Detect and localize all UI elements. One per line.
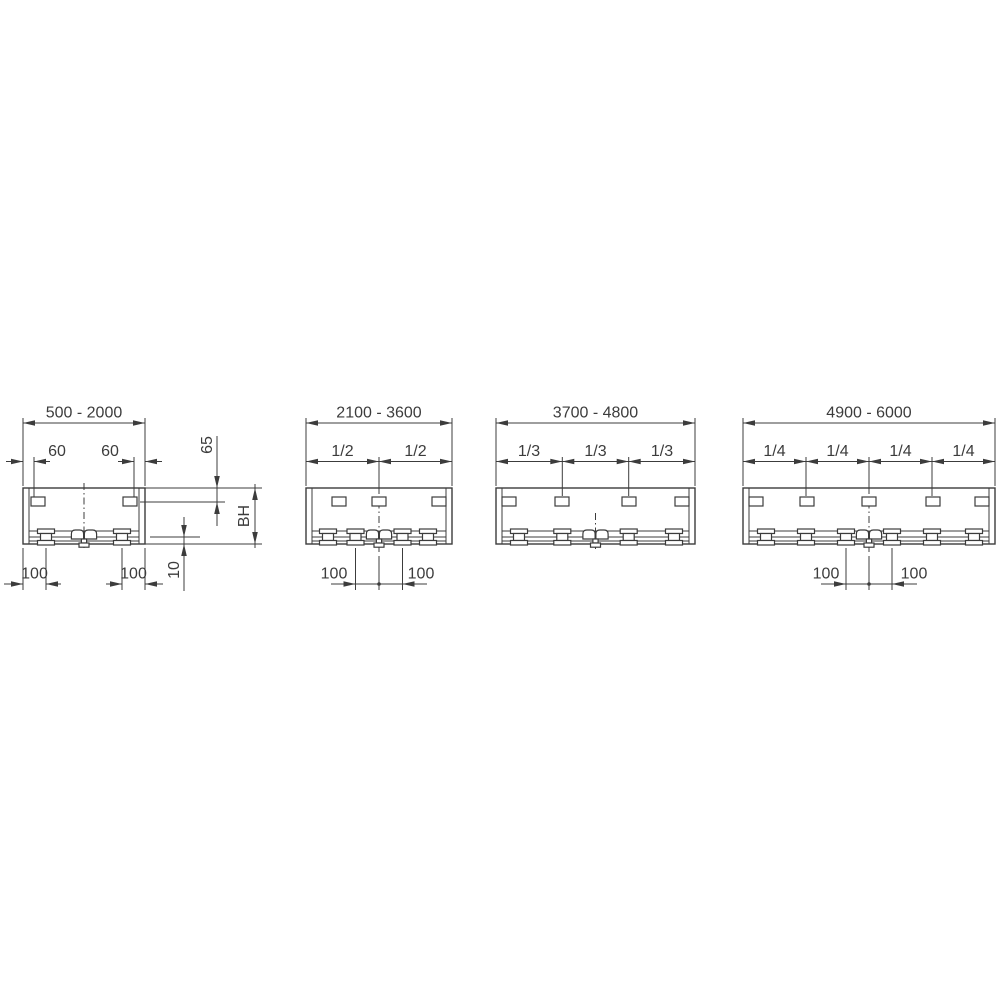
mounting-clip xyxy=(372,497,386,506)
rail-bracket xyxy=(38,529,55,545)
range-label: 3700 - 4800 xyxy=(553,405,639,422)
diagram-3700-4800: 3700 - 4800 1/3 1/3 1/3 xyxy=(496,405,695,553)
diagram-4900-6000: 4900 - 6000 1/4 1/4 1/4 1/4 100 100 xyxy=(743,405,995,591)
bottom-offset-label: 100 xyxy=(120,566,147,583)
technical-drawing-canvas: 500 - 2000 60 60 65 BH 10 100 100 xyxy=(0,0,1000,1000)
bracket-mounting-diagram: 500 - 2000 60 60 65 BH 10 100 100 xyxy=(0,0,1000,1000)
mounting-clip xyxy=(749,497,763,506)
spacing-label: 1/4 xyxy=(826,443,848,460)
top-offset-label: 65 xyxy=(199,436,216,454)
spacing-label: 1/3 xyxy=(651,443,673,460)
rail-bracket xyxy=(666,529,683,545)
spacing-label: 1/4 xyxy=(889,443,911,460)
rail-bracket xyxy=(511,529,528,545)
rail-offset-label: 10 xyxy=(166,561,183,579)
clip-offset-label: 60 xyxy=(101,443,119,460)
bottom-offset-label: 100 xyxy=(901,566,928,583)
diagram2-body xyxy=(306,487,452,552)
rail-bracket xyxy=(420,529,437,545)
mounting-clip xyxy=(622,497,636,506)
rail-bracket xyxy=(966,529,983,545)
clip-offset-label: 60 xyxy=(48,443,66,460)
height-label: BH xyxy=(236,505,253,527)
bottom-offset-label: 100 xyxy=(408,566,435,583)
spacing-label: 1/2 xyxy=(331,443,353,460)
diagram3-body xyxy=(496,488,695,552)
bottom-offset-label: 100 xyxy=(813,566,840,583)
rail-bracket xyxy=(320,529,337,545)
mounting-clip xyxy=(800,497,814,506)
mounting-clip xyxy=(432,497,446,506)
mounting-clip xyxy=(926,497,940,506)
mounting-clip xyxy=(332,497,346,506)
rail-bracket xyxy=(838,529,855,545)
spacing-label: 1/4 xyxy=(952,443,974,460)
range-label: 4900 - 6000 xyxy=(826,405,912,422)
bottom-offset-label: 100 xyxy=(21,566,48,583)
rail-bracket xyxy=(347,529,364,545)
diagram1-body xyxy=(23,483,145,551)
spacing-label: 1/4 xyxy=(763,443,785,460)
rail-bracket xyxy=(924,529,941,545)
mounting-clip xyxy=(123,497,137,506)
mounting-clip xyxy=(675,497,689,506)
rail-bracket xyxy=(798,529,815,545)
mounting-clip xyxy=(555,497,569,506)
range-label: 2100 - 3600 xyxy=(336,405,422,422)
mounting-clip xyxy=(502,497,516,506)
rail-bracket xyxy=(394,529,411,545)
rail-bracket xyxy=(620,529,637,545)
mounting-clip xyxy=(862,497,876,506)
spacing-label: 1/3 xyxy=(584,443,606,460)
diagram-500-2000: 500 - 2000 60 60 65 BH 10 100 100 xyxy=(4,405,262,592)
rail-bracket xyxy=(554,529,571,545)
rail-bracket xyxy=(884,529,901,545)
range-label: 500 - 2000 xyxy=(46,405,123,422)
mounting-clip xyxy=(975,497,989,506)
diagram4-body xyxy=(743,487,995,552)
rail-bracket xyxy=(114,529,131,545)
mounting-clip xyxy=(31,497,45,506)
spacing-label: 1/3 xyxy=(518,443,540,460)
diagram-2100-3600: 2100 - 3600 1/2 1/2 100 100 xyxy=(306,405,452,591)
bottom-offset-label: 100 xyxy=(321,566,348,583)
rail-bracket xyxy=(758,529,775,545)
spacing-label: 1/2 xyxy=(404,443,426,460)
